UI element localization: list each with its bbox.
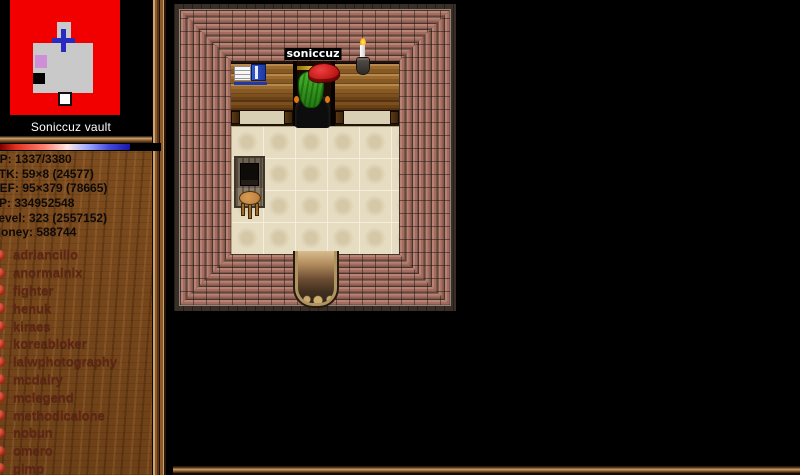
- player-list-item[interactable]: mcdairy: [0, 371, 152, 389]
- player-dot-icon: [0, 250, 5, 260]
- blue-book: [251, 64, 266, 81]
- counter-front: [335, 94, 399, 111]
- stool-leg: [248, 204, 252, 219]
- stool-top: [239, 191, 261, 205]
- character-hat: [307, 62, 340, 84]
- player-dot-icon: [0, 357, 5, 367]
- player-dot-icon: [0, 374, 5, 384]
- brick-wall-right: [399, 10, 450, 305]
- stool-leg: [241, 203, 245, 216]
- player-dot-icon: [0, 463, 5, 473]
- candle-icon: [356, 38, 370, 77]
- stat-hp: HP: 1337/3380: [0, 152, 166, 167]
- character-shoulder: [325, 96, 330, 103]
- crate-opening: [240, 163, 259, 186]
- game-screen: Soniccuz vault HP: 1337/3380 ATK: 59×8 (…: [0, 0, 800, 475]
- player-list-item[interactable]: mclegend: [0, 388, 152, 406]
- game-viewport[interactable]: soniccuz: [173, 3, 457, 312]
- sidebar-right-border: [152, 0, 166, 475]
- player-list-item[interactable]: fighter: [0, 282, 152, 300]
- hp-bar-fill: [0, 144, 130, 150]
- book-page: [234, 66, 251, 81]
- player-dot-icon: [0, 303, 5, 313]
- brick-wall-left: [180, 10, 231, 305]
- player-list-item[interactable]: koreabloker: [0, 335, 152, 353]
- player-dot-icon: [0, 428, 5, 438]
- player-dot-icon: [0, 392, 5, 402]
- player-list-item[interactable]: pimp: [0, 460, 152, 475]
- sidebar: Soniccuz vault HP: 1337/3380 ATK: 59×8 (…: [0, 0, 152, 475]
- stats-panel: HP: 1337/3380 ATK: 59×8 (24577) DEF: 95×…: [0, 152, 166, 240]
- player-dot-icon: [0, 268, 5, 278]
- player-list-item[interactable]: omero: [0, 442, 152, 460]
- minimap-wall-notch: [33, 73, 45, 84]
- character-name-label: soniccuz: [285, 48, 342, 60]
- player-dot-icon: [0, 446, 5, 456]
- player-character[interactable]: soniccuz: [284, 48, 342, 128]
- counter-leg: [231, 111, 240, 124]
- stat-level: Level: 323 (2557152): [0, 211, 166, 226]
- player-list-item[interactable]: kiraes: [0, 317, 152, 335]
- player-dot-icon: [0, 285, 5, 295]
- player-list: adriancillo anormalnix fighter henuk kir…: [0, 246, 152, 475]
- minimap-exit-marker: [58, 92, 72, 106]
- open-book-icon: [234, 63, 269, 85]
- book-shelf: [234, 82, 267, 85]
- stat-xp: XP: 334952548: [0, 196, 166, 211]
- minimap-location-title: Soniccuz vault: [0, 120, 142, 134]
- minimap-player-cross-icon: [52, 38, 75, 43]
- player-list-item[interactable]: nobun: [0, 424, 152, 442]
- player-list-item[interactable]: henuk: [0, 299, 152, 317]
- candle-sconce: [357, 58, 369, 74]
- minimap-panel: Soniccuz vault: [0, 0, 152, 137]
- character-shoulder: [294, 96, 299, 103]
- stool[interactable]: [239, 191, 262, 220]
- player-list-item[interactable]: anormalnix: [0, 264, 152, 282]
- stat-atk: ATK: 59×8 (24577): [0, 167, 166, 182]
- counter-legs: [335, 111, 399, 124]
- minimap-marker-pink: [35, 55, 47, 68]
- counter-leg: [390, 111, 399, 124]
- player-list-item[interactable]: adriancillo: [0, 246, 152, 264]
- minimap: [10, 0, 120, 115]
- player-list-item[interactable]: lalwphotography: [0, 353, 152, 371]
- exit-doorway[interactable]: [293, 251, 339, 308]
- player-dot-icon: [0, 410, 5, 420]
- stat-def: DEF: 95×379 (78665): [0, 181, 166, 196]
- exit-tunnel: [298, 251, 334, 303]
- stat-money: Money: 588744: [0, 225, 166, 240]
- chat-divider: [173, 466, 800, 473]
- player-dot-icon: [0, 339, 5, 349]
- candle-stick: [360, 45, 365, 59]
- player-list-item[interactable]: methodicalone: [0, 406, 152, 424]
- stool-leg: [255, 203, 259, 216]
- player-dot-icon: [0, 321, 5, 331]
- hp-bar: [0, 143, 161, 151]
